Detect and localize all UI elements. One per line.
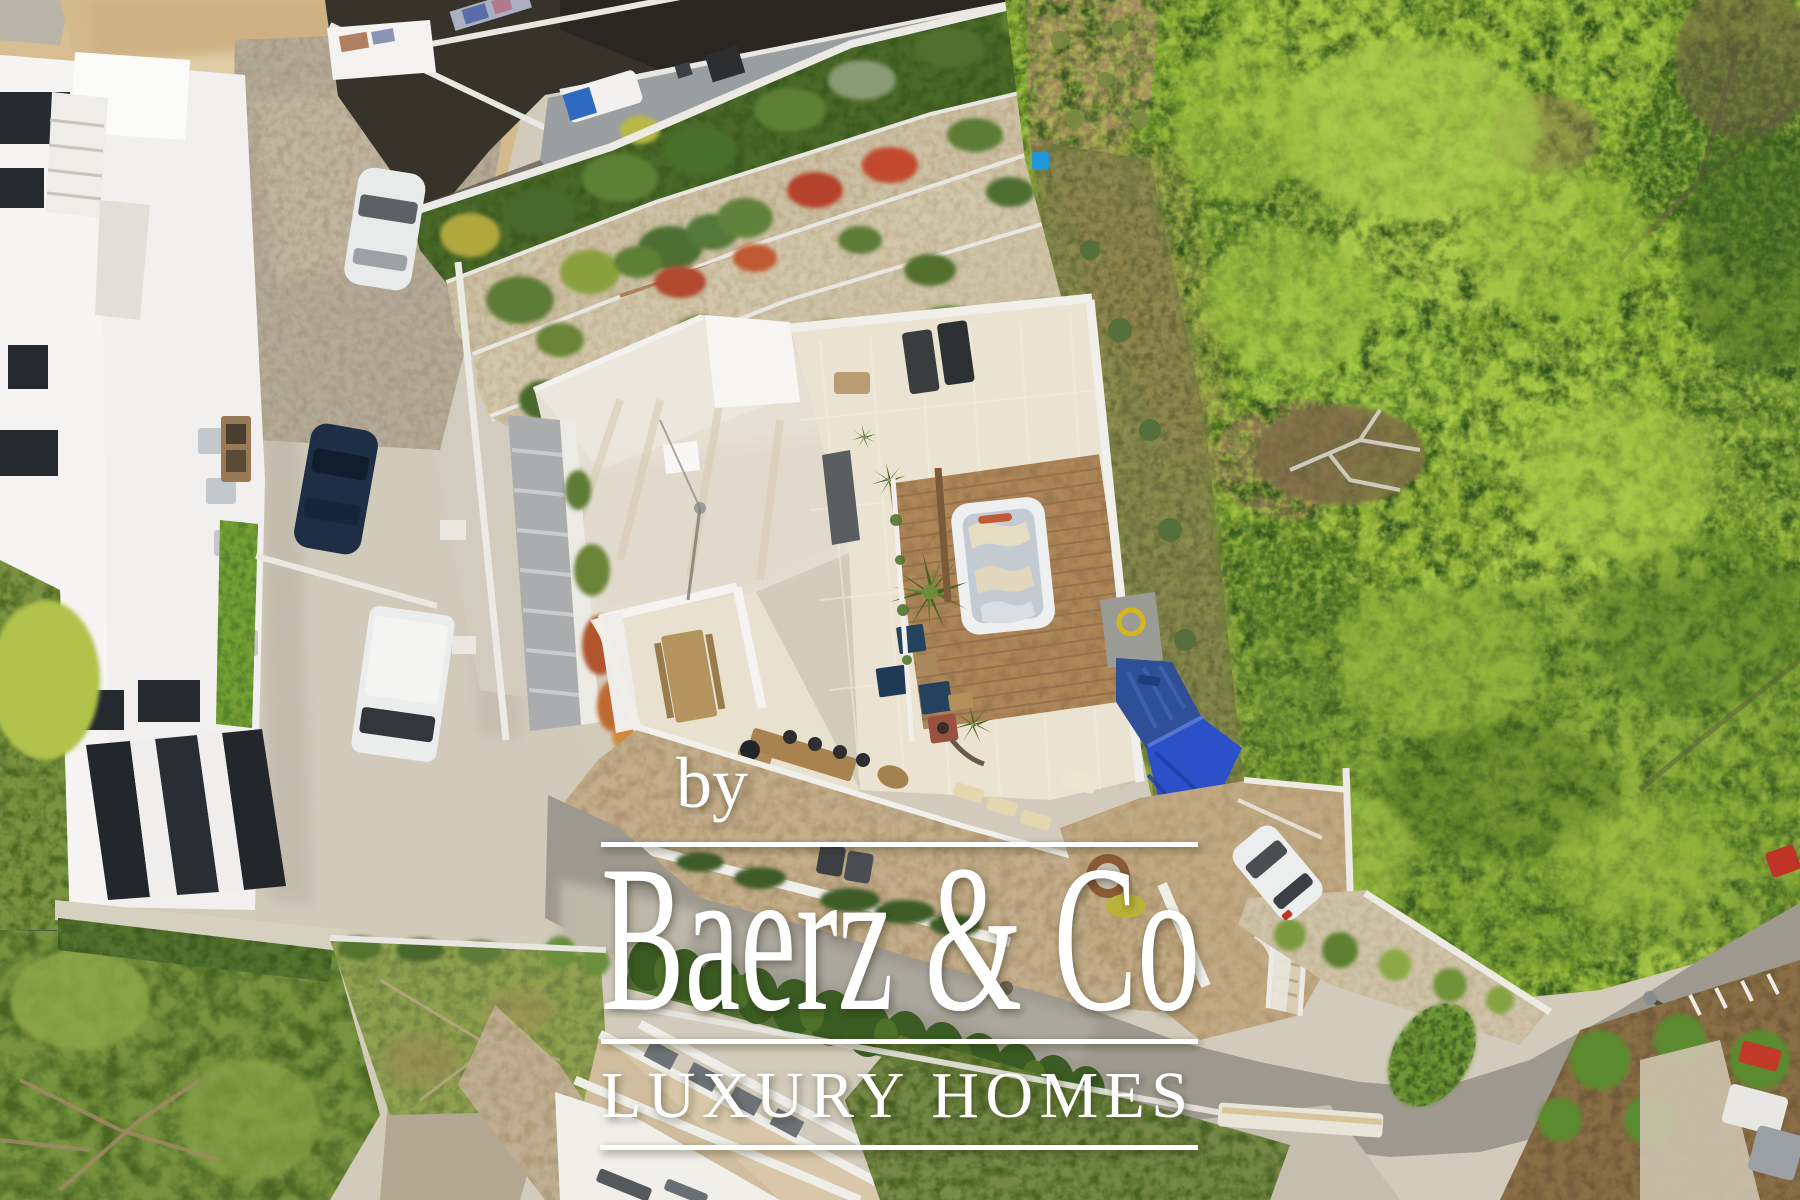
- svg-text:by: by: [676, 743, 748, 823]
- svg-text:LUXURY HOMES: LUXURY HOMES: [601, 1059, 1199, 1132]
- svg-text:Baerz & Co: Baerz & Co: [601, 823, 1200, 1055]
